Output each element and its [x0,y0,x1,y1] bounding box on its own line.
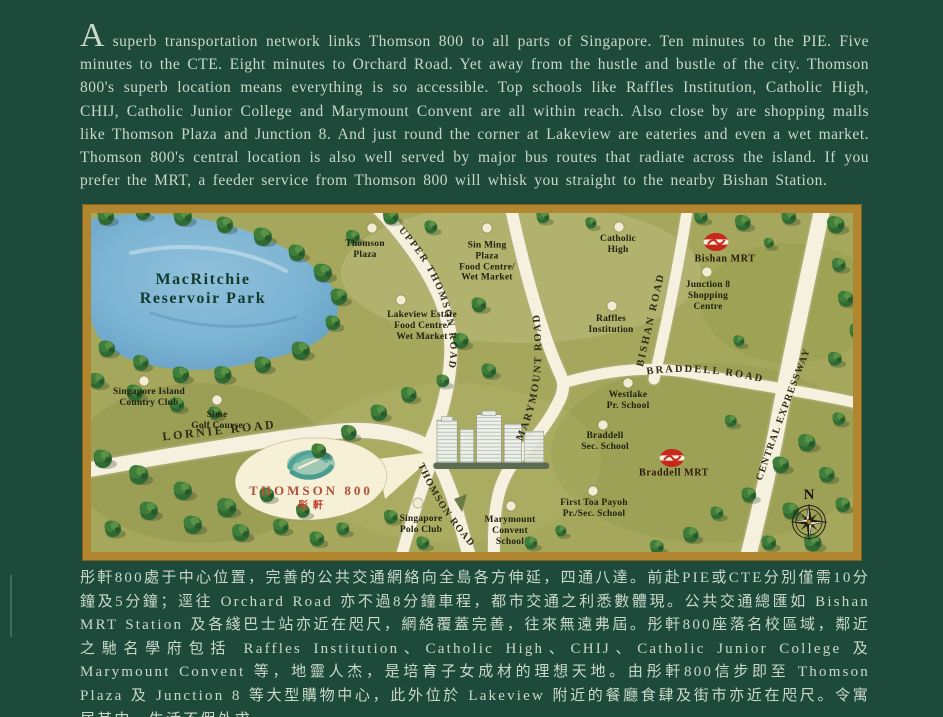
place-label-sicc: Singapore Island Country Club [113,387,185,409]
place-label-catholic-high: Catholic High [600,234,636,256]
place-marker-dot [598,420,608,430]
scan-artifact [10,575,12,637]
place-marker-dot [482,223,492,233]
place-label-sime: Sime Golf Course [191,410,243,432]
place-marker-dot [396,295,406,305]
intro-paragraph: Asuperb transportation network links Tho… [80,30,869,192]
place-marker-dot [702,267,712,277]
place-label-lakeview: Lakeview Estate Food Centre/ Wet Market [387,310,457,342]
thomson-800-logo-subtitle: 彤軒 [298,497,328,512]
place-label-sin-ming: Sin Ming Plaza Food Centre/ Wet Market [459,240,515,283]
place-marker-dot [588,486,598,496]
place-marker-dot [614,222,624,232]
location-map-frame: N UPPER THOMSON ROAD THOMSON ROAD LORNIE… [83,205,861,560]
place-label-raffles: Raffles Institution [589,314,634,336]
place-label-marymount-convent: Marymount Convent School [485,515,536,547]
place-label-junction-8: Junction 8 Shopping Centre [686,280,731,312]
place-marker-dot [212,395,222,405]
place-marker-dot [139,376,149,386]
brochure-page: Asuperb transportation network links Tho… [0,0,943,717]
braddell-mrt-label: Braddell MRT [639,468,709,479]
compass-north-label: N [804,487,815,503]
intro-dropcap: A [80,17,106,54]
location-map: N UPPER THOMSON ROAD THOMSON ROAD LORNIE… [91,213,853,552]
place-label-polo-club: Singapore Polo Club [400,514,443,536]
park-label: MacRitchie Reservoir Park [140,270,267,308]
place-marker-dot [367,223,377,233]
place-marker-dot [413,498,423,508]
place-label-first-toa-payoh: First Toa Payoh Pr./Sec. School [560,498,627,520]
place-marker-dot [506,501,516,511]
intro-text: superb transportation network links Thom… [80,33,869,189]
chinese-paragraph: 彤軒800處于中心位置，完善的公共交通網絡向全島各方伸延，四通八達。前赴PIE或… [80,567,870,717]
place-marker-dot [607,301,617,311]
place-label-thomson-plaza: Thomson Plaza [345,239,384,261]
place-marker-dot [623,378,633,388]
place-label-westlake: Westlake Pr. School [607,390,650,412]
place-label-braddell-sec: Braddell Sec. School [581,431,629,453]
bishan-mrt-label: Bishan MRT [695,254,756,265]
